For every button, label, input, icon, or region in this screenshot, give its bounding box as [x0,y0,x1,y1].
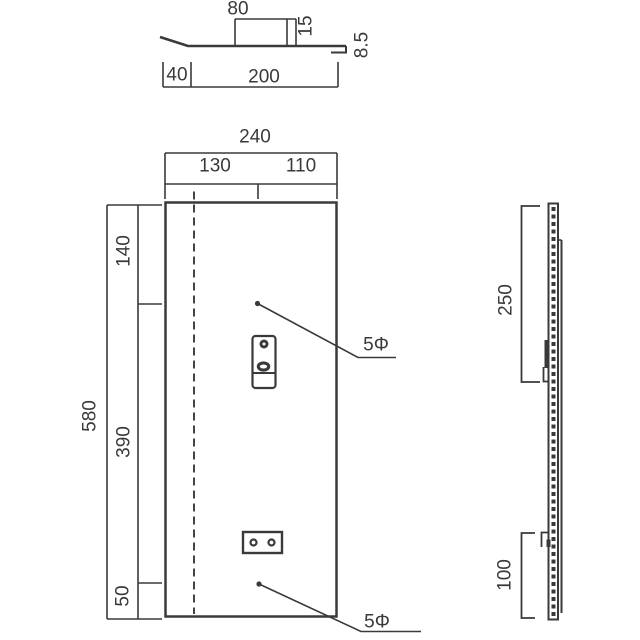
side-view [542,204,562,620]
dim-label-240: 240 [239,128,271,147]
dim-label-250: 250 [497,284,516,316]
dim-250-bracket [522,206,541,382]
slot-hole-circle [261,341,267,347]
hole-leader-bottom [256,581,421,631]
dim-80-15-bracket [235,19,296,46]
lower-slot-plate-edge [547,540,551,548]
plate-outline [243,532,282,553]
dim-label-390: 390 [115,426,134,458]
top-view-profile [160,37,346,53]
dim-100-bracket [522,533,536,618]
profile-line [160,37,346,46]
front-view [166,192,422,632]
hole-diameter-label-top: 5Φ [363,336,389,355]
dim-label-80: 80 [227,0,248,19]
dim-label-110: 110 [286,157,316,176]
dim-height-brackets [107,205,162,619]
upper-slot-plate-edge [545,340,549,368]
dim-label-130: 130 [199,157,231,176]
dim-label-50: 50 [114,585,133,606]
hole-diameter-label-bottom: 5Φ [364,613,390,632]
side-view-dimensions [522,206,541,618]
dim-label-200: 200 [248,68,280,87]
front-view-dimensions [107,153,337,619]
upper-keyhole-slot [253,336,276,388]
plate-hole-left [251,540,257,546]
dim-label-8-5: 8.5 [353,32,372,58]
dim-label-40: 40 [166,66,187,85]
dim-label-100: 100 [496,559,515,591]
leader-line-bottom [259,584,421,632]
technical-drawing-canvas: 80 15 8.5 40 200 240 130 110 140 390 50 … [0,0,640,640]
slot-oval [258,363,268,370]
drawing-linework [0,0,640,640]
lower-hole-plate [243,532,282,553]
dim-label-580: 580 [81,400,100,432]
plate-hole-right [269,540,275,546]
panel-outline [166,203,337,617]
dim-label-140: 140 [115,235,134,267]
dim-label-15: 15 [297,15,316,36]
